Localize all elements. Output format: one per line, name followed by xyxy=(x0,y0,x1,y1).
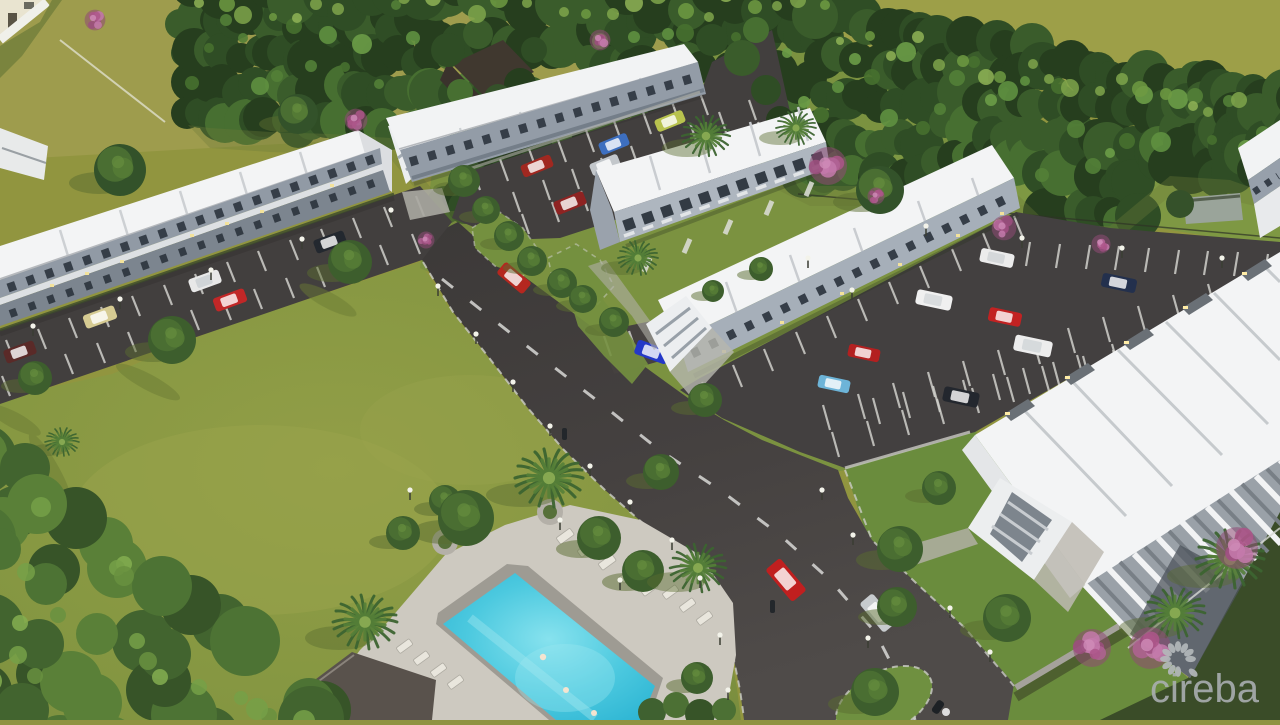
svg-text:cireba: cireba xyxy=(1150,667,1260,711)
